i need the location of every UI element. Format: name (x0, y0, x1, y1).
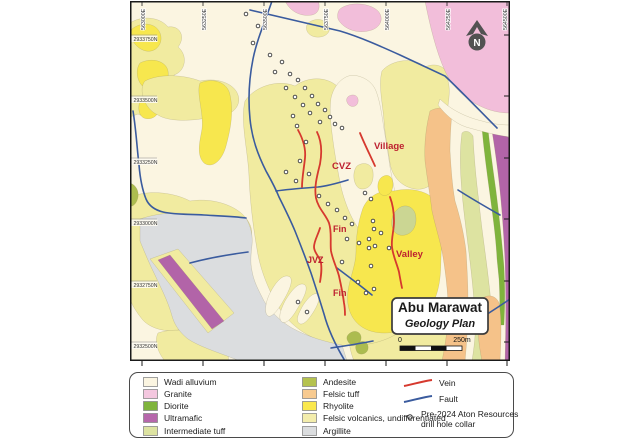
legend-swatch (303, 402, 317, 411)
drill-collar (340, 260, 344, 264)
northing-label: 2932500N (134, 344, 158, 350)
easting-label: 563500E (263, 8, 269, 30)
vein-symbol (402, 377, 434, 389)
drill-collar (298, 159, 302, 163)
fault-symbol (402, 393, 434, 405)
drill-collar (379, 231, 383, 235)
legend-swatch (303, 377, 317, 386)
drill-collar (372, 287, 376, 291)
drill-collar (318, 120, 322, 124)
map-title: Abu Marawat (398, 300, 483, 315)
prospect-label-village: Village (374, 141, 404, 152)
prospect-label-jvz: JVZ (307, 255, 324, 265)
legend-swatch (303, 389, 317, 398)
drill-collar (304, 140, 308, 144)
drill-collar (367, 246, 371, 250)
legend-swatch (303, 426, 317, 435)
drill-collar (373, 244, 377, 248)
legend-swatch (144, 377, 158, 386)
drill-collar (308, 111, 312, 115)
scale-bar-start: 0 (398, 337, 402, 344)
drill-collar (340, 126, 344, 130)
legend-item-intermediate-tuff: Intermediate tuff (143, 425, 225, 436)
northing-label: 2933750N (134, 37, 158, 43)
drill-collar (295, 124, 299, 128)
drill-collar (387, 246, 391, 250)
easting-label: 563250E (202, 8, 208, 30)
prospect-label-fin-1: Fin (333, 224, 347, 234)
north-arrow-letter: N (473, 38, 480, 49)
easting-label: 564000E (385, 8, 391, 30)
legend-swatch (144, 426, 158, 435)
legend-label: Ultramafic (164, 413, 202, 423)
legend-swatch (303, 414, 317, 423)
easting-label: 564250E (446, 8, 452, 30)
drill-collar (343, 216, 347, 220)
legend-item-argillite: Argillite (302, 425, 351, 436)
drill-collar (303, 86, 307, 90)
drill-collar (288, 72, 292, 76)
drill-collar (273, 70, 277, 74)
legend-label: Pre-2024 Aton Resourcesdrill hole collar (421, 410, 518, 429)
legend-label: Argillite (323, 426, 351, 436)
title-box: Abu Marawat Geology Plan (392, 298, 488, 334)
legend-item-drill-collar: Pre-2024 Aton Resourcesdrill hole collar (404, 410, 518, 429)
drill-collar (369, 197, 373, 201)
legend-item-fault: Fault (402, 393, 458, 405)
easting-label: 563000E (141, 8, 147, 30)
drill-collar (294, 179, 298, 183)
drill-collar (293, 95, 297, 99)
prospect-label-cvz: CVZ (332, 161, 351, 172)
drill-collar (268, 53, 272, 57)
legend-item-vein: Vein (402, 377, 456, 389)
legend-item-wadi-alluvium: Wadi alluvium (143, 376, 217, 387)
map-canvas: Village CVZ Fin JVZ Fin Valley N Abu Mar… (130, 1, 510, 369)
easting-label: 563750E (324, 8, 330, 30)
drill-collar (367, 237, 371, 241)
legend-panel: Wadi alluvium Granite Diorite Ultramafic… (129, 372, 514, 438)
northing-label: 2932750N (134, 283, 158, 289)
legend-label: Rhyolite (323, 401, 354, 411)
drill-collar (305, 310, 309, 314)
drill-collar (251, 41, 255, 45)
drill-collar-symbol (404, 411, 416, 423)
prospect-label-valley: Valley (396, 249, 424, 260)
drill-collar (328, 115, 332, 119)
legend-item-ultramafic: Ultramafic (143, 413, 202, 424)
drill-collar (244, 12, 248, 16)
geology-map: Village CVZ Fin JVZ Fin Valley N Abu Mar… (130, 1, 510, 369)
drill-collar (316, 102, 320, 106)
drill-collar (296, 300, 300, 304)
drill-collar (356, 280, 360, 284)
geology-rhyolite (378, 175, 393, 195)
drill-collar (317, 194, 321, 198)
drill-collar (335, 208, 339, 212)
drill-collar (326, 202, 330, 206)
drill-collar (350, 222, 354, 226)
legend-label: Diorite (164, 401, 189, 411)
legend-label: Vein (439, 378, 456, 388)
legend-swatch (144, 414, 158, 423)
prospect-label-fin-2: Fin (333, 288, 347, 298)
northing-label: 2933500N (134, 98, 158, 104)
drill-collar (310, 94, 314, 98)
legend-swatch (144, 402, 158, 411)
easting-label: 564500E (503, 8, 509, 30)
drill-collar (357, 241, 361, 245)
drill-collar (372, 227, 376, 231)
drill-collar (291, 114, 295, 118)
drill-collar (256, 24, 260, 28)
legend-item-rhyolite: Rhyolite (302, 401, 354, 412)
drill-collar (301, 103, 305, 107)
drill-collar (364, 291, 368, 295)
legend-label: Wadi alluvium (164, 377, 217, 387)
legend-label: Felsic tuff (323, 389, 359, 399)
drill-collar (371, 219, 375, 223)
geology-felsic-volcanics (354, 164, 373, 189)
legend-label: Granite (164, 389, 192, 399)
drill-collar (296, 78, 300, 82)
drill-collar (345, 237, 349, 241)
legend-label: Andesite (323, 377, 356, 387)
legend-label: Fault (439, 394, 458, 404)
scale-bar-end: 250m (453, 337, 471, 344)
legend-label: Intermediate tuff (164, 426, 225, 436)
drill-collar (363, 191, 367, 195)
drill-collar (284, 170, 288, 174)
drill-collar (307, 172, 311, 176)
drill-collar (280, 60, 284, 64)
legend-swatch (144, 389, 158, 398)
drill-collar (284, 86, 288, 90)
legend-item-diorite: Diorite (143, 401, 189, 412)
legend-item-felsic-tuff: Felsic tuff (302, 388, 359, 399)
legend-item-granite: Granite (143, 388, 192, 399)
drill-collar (323, 108, 327, 112)
northing-label: 2933000N (134, 221, 158, 227)
geology-layer: Village CVZ Fin JVZ Fin Valley N Abu Mar… (130, 1, 510, 361)
legend-item-andesite: Andesite (302, 376, 356, 387)
drill-collar (369, 264, 373, 268)
northing-label: 2933250N (134, 160, 158, 166)
map-subtitle: Geology Plan (405, 318, 476, 330)
drill-collar (333, 122, 337, 126)
